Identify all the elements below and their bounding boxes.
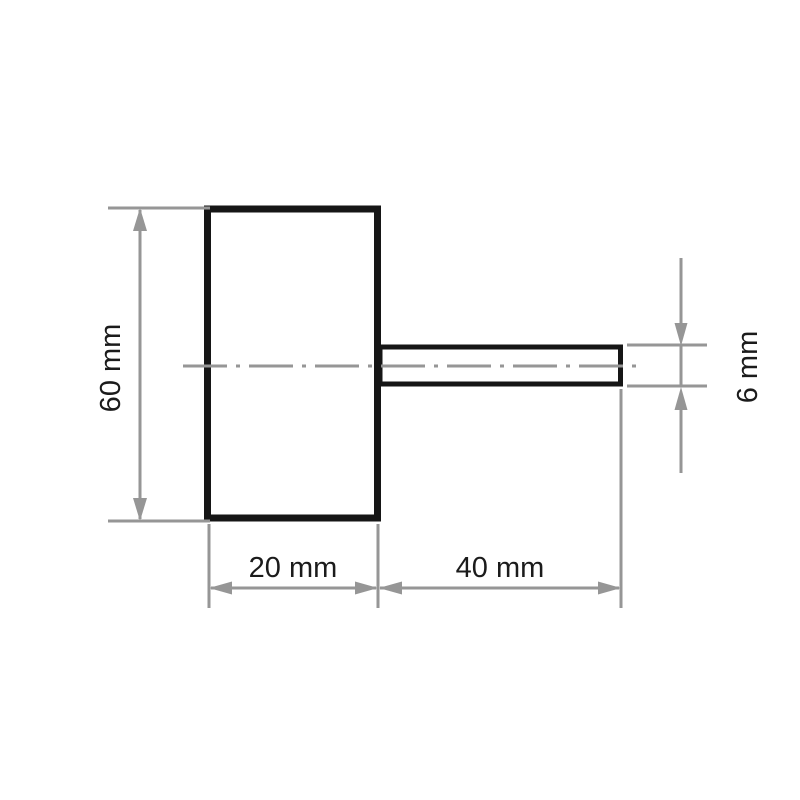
arrowhead-up-icon [133,208,147,231]
technical-drawing: 60 mm 20 mm 40 mm 6 mm [0,0,800,800]
arrowhead-right-icon [598,582,621,595]
arrowhead-up-icon [675,387,688,410]
dimension-label-40mm: 40 mm [456,552,545,584]
dimension-40mm: 40 mm [379,389,621,608]
arrowhead-left-icon [379,582,402,595]
dimension-label-20mm: 20 mm [249,552,338,584]
dimension-20mm: 20 mm [209,524,378,608]
dimension-6mm: 6 mm [627,258,764,473]
arrowhead-left-icon [209,582,232,595]
drawing-canvas: 60 mm 20 mm 40 mm 6 mm [0,0,800,800]
dimension-label-60mm: 60 mm [95,324,127,413]
arrowhead-right-icon [355,582,378,595]
wheel-body-outline [208,209,378,518]
dimension-label-6mm: 6 mm [732,331,764,404]
part-outline-group [183,209,645,518]
arrowhead-down-icon [675,323,688,346]
arrowhead-down-icon [133,498,147,521]
